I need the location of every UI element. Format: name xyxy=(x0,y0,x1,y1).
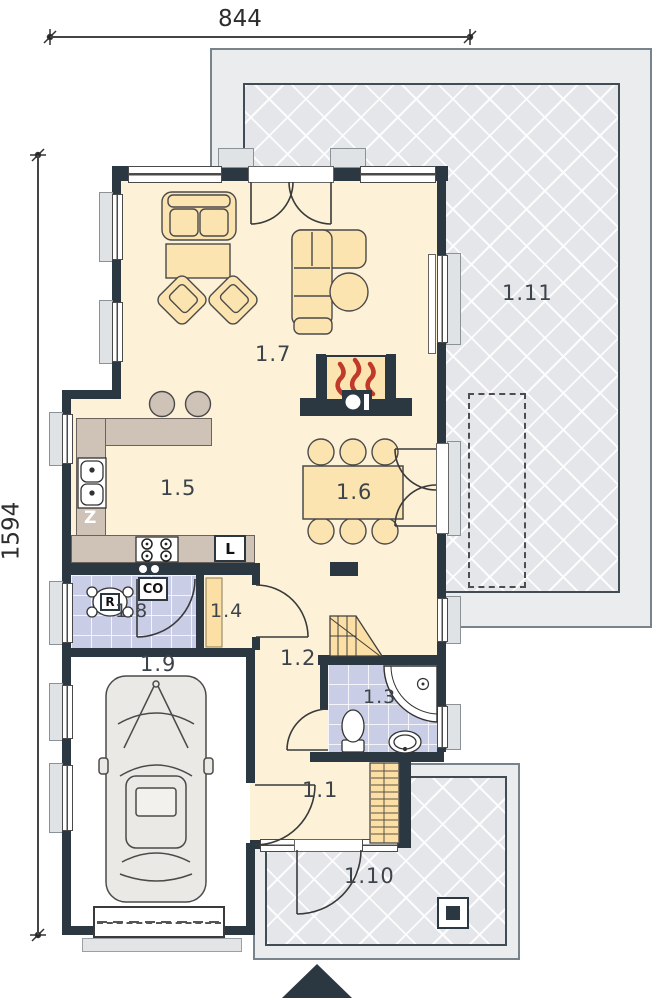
room-label-1-1: 1.1 xyxy=(302,778,338,802)
left-window-1-sill xyxy=(99,192,113,262)
kitchen-window xyxy=(62,414,73,464)
terrace-pergola-outline xyxy=(468,393,526,588)
left-window-1 xyxy=(112,194,123,260)
wall-garage-hall-2 xyxy=(246,843,255,926)
wall-entry-bottom-1 xyxy=(250,840,260,849)
wall-right-3 xyxy=(437,532,446,598)
left-dimension-label: 1594 xyxy=(0,502,24,561)
terrace-post-right xyxy=(330,148,366,168)
wall-pantry-hall-1 xyxy=(252,575,260,585)
entry-window-left xyxy=(260,839,296,852)
room-label-1-4: 1.4 xyxy=(210,600,243,622)
entry-door-threshold xyxy=(294,839,364,852)
room-label-1-2: 1.2 xyxy=(280,646,316,670)
wall-top-post-2 xyxy=(220,166,250,181)
left-dimension-line xyxy=(37,155,39,935)
wall-entry-right xyxy=(398,762,411,848)
left-window-2-sill xyxy=(99,300,113,364)
wall-left-lower-4 xyxy=(62,737,71,765)
top-dimension-line xyxy=(50,36,470,38)
wall-right-2 xyxy=(437,341,446,443)
top-window-right xyxy=(360,166,436,183)
porch-column xyxy=(437,897,469,929)
utility-window xyxy=(62,583,73,643)
boiler-label: CO xyxy=(138,577,168,601)
right-window-1-sill xyxy=(446,253,461,345)
top-window-left xyxy=(128,166,222,183)
wall-left-upper-1 xyxy=(112,166,121,194)
fridge-label: L xyxy=(214,535,246,562)
wall-bath-left xyxy=(320,664,328,710)
room-label-1-5: 1.5 xyxy=(160,476,196,500)
right-window-1 xyxy=(437,255,448,343)
garage-window-1 xyxy=(62,685,73,739)
wall-kitchen-utility xyxy=(62,563,260,575)
entrance-arrow-icon xyxy=(282,964,352,998)
kitchen-window-sill xyxy=(49,412,63,466)
wall-top-post-3 xyxy=(330,166,360,181)
room-label-1-9: 1.9 xyxy=(140,652,176,676)
entry-window-right xyxy=(362,839,398,852)
porch-column-core xyxy=(446,906,460,920)
room-label-1-3: 1.3 xyxy=(363,686,396,708)
garage-door xyxy=(93,906,225,938)
wall-left-upper-2 xyxy=(112,258,121,302)
bathroom-floor xyxy=(328,664,437,754)
right-window-3 xyxy=(437,706,448,748)
wall-left-lower-5 xyxy=(62,829,71,926)
garage-window-2 xyxy=(62,765,73,831)
living-radiator xyxy=(428,254,436,354)
terrace-french-door-sill xyxy=(447,441,461,536)
garage-apron xyxy=(82,938,242,952)
wall-right-4 xyxy=(437,640,446,706)
wall-bottom-1 xyxy=(62,926,95,935)
wall-right-1 xyxy=(437,166,446,255)
left-window-2 xyxy=(112,302,123,362)
right-window-2 xyxy=(437,598,448,642)
wall-left-upper-3 xyxy=(112,360,121,390)
garage-door-dash xyxy=(97,922,221,924)
wall-bottom-2 xyxy=(223,926,255,935)
room-label-1-8: 1.8 xyxy=(115,600,148,622)
garage-window-1-sill xyxy=(49,683,63,741)
wall-garage-hall-1 xyxy=(246,657,255,783)
room-label-1-10: 1.10 xyxy=(344,864,395,888)
floor-plan: 844 1594 1.11 1.10 xyxy=(0,0,660,1000)
terrace-door-threshold xyxy=(248,166,334,183)
top-dimension-label: 844 xyxy=(218,6,262,32)
terrace-french-door-threshold xyxy=(436,443,449,534)
garage-window-2-sill xyxy=(49,763,63,833)
right-window-2-sill xyxy=(446,596,461,644)
wall-bath-top xyxy=(318,655,444,665)
wall-utility-pantry xyxy=(196,575,204,650)
terrace-post-left xyxy=(218,148,254,168)
wall-bath-bottom xyxy=(310,752,444,762)
structural-pillar xyxy=(330,562,358,576)
entry-hall-floor xyxy=(250,762,398,848)
room-label-1-7: 1.7 xyxy=(255,342,291,366)
garage-floor xyxy=(66,656,246,928)
wall-left-lower-1 xyxy=(62,390,71,414)
utility-window-sill xyxy=(49,581,63,645)
room-label-1-11: 1.11 xyxy=(502,281,553,305)
dishwasher-label: Z xyxy=(84,508,96,528)
right-window-3-sill xyxy=(446,704,461,750)
room-label-1-6: 1.6 xyxy=(336,480,372,504)
